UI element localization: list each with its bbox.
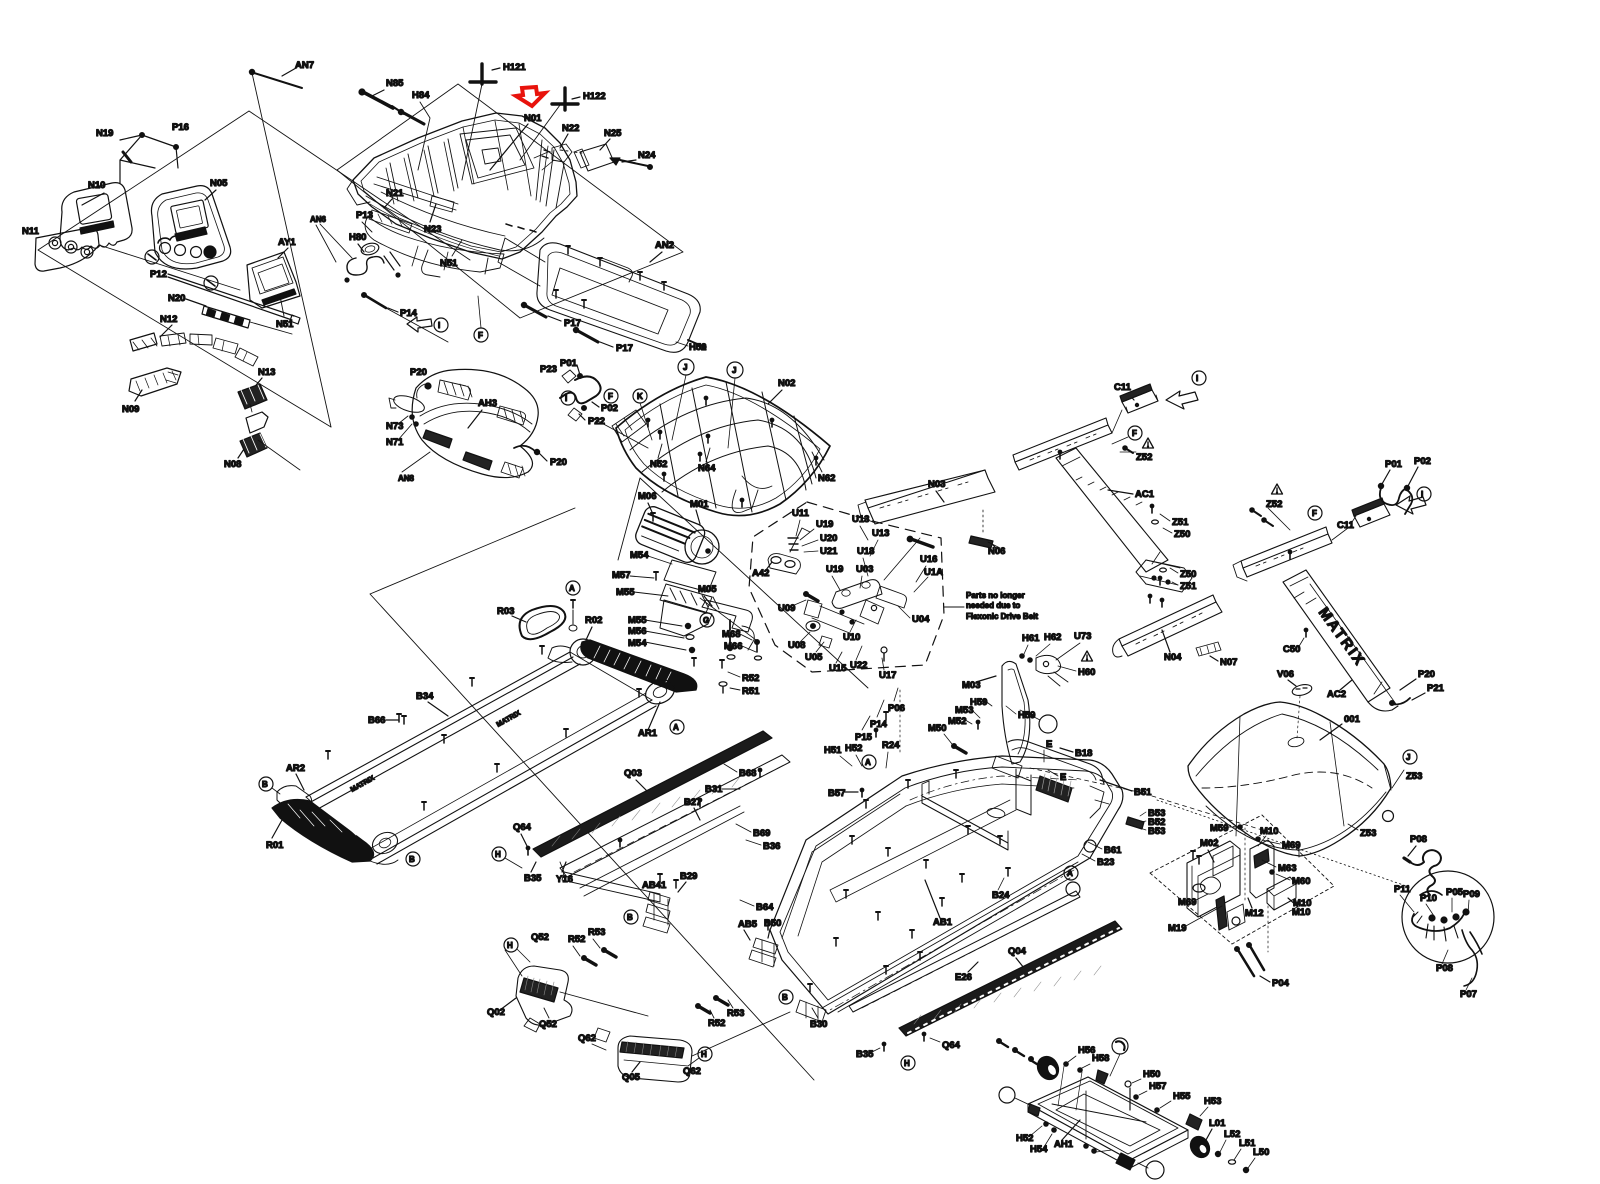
svg-text:N09: N09 xyxy=(122,404,139,415)
svg-text:B51: B51 xyxy=(1134,787,1152,798)
svg-text:B69: B69 xyxy=(753,828,770,839)
svg-text:H122: H122 xyxy=(583,91,606,102)
svg-text:U21: U21 xyxy=(820,546,838,557)
svg-text:Z50: Z50 xyxy=(1174,529,1190,540)
svg-text:L50: L50 xyxy=(1253,1147,1269,1158)
svg-text:P08: P08 xyxy=(1436,963,1453,974)
svg-text:P20: P20 xyxy=(1418,669,1435,680)
svg-text:AB5: AB5 xyxy=(738,919,758,930)
svg-text:R02: R02 xyxy=(585,615,602,626)
svg-text:P07: P07 xyxy=(1460,989,1477,1000)
svg-text:C11: C11 xyxy=(1114,382,1132,393)
svg-text:P15: P15 xyxy=(855,732,873,743)
svg-text:AN6: AN6 xyxy=(310,215,327,224)
svg-text:B18: B18 xyxy=(1075,748,1092,759)
svg-text:N11: N11 xyxy=(22,226,40,237)
svg-text:Z50: Z50 xyxy=(1180,569,1196,580)
svg-text:P11: P11 xyxy=(1394,884,1411,895)
svg-text:R01: R01 xyxy=(266,840,284,851)
svg-text:P02: P02 xyxy=(1414,456,1431,467)
svg-text:J: J xyxy=(683,363,687,372)
svg-text:Parts no longer: Parts no longer xyxy=(966,591,1025,600)
svg-text:N51: N51 xyxy=(276,319,294,330)
svg-text:U13: U13 xyxy=(852,514,869,525)
svg-text:H59: H59 xyxy=(970,697,987,708)
svg-text:H58: H58 xyxy=(1092,1053,1109,1064)
svg-text:J: J xyxy=(732,366,736,375)
svg-text:U04: U04 xyxy=(912,614,930,625)
svg-text:AB1: AB1 xyxy=(933,917,953,928)
svg-text:B35: B35 xyxy=(856,1049,874,1060)
svg-text:M01: M01 xyxy=(690,499,709,510)
svg-text:needed due to: needed due to xyxy=(966,601,1020,610)
svg-text:N04: N04 xyxy=(1164,652,1182,663)
svg-text:R24: R24 xyxy=(882,740,900,751)
svg-text:001: 001 xyxy=(1344,714,1361,725)
svg-text:M02: M02 xyxy=(1200,838,1218,849)
svg-text:B36: B36 xyxy=(763,841,780,852)
svg-text:Q52: Q52 xyxy=(539,1019,557,1030)
svg-text:H121: H121 xyxy=(503,62,526,73)
svg-text:A: A xyxy=(865,758,871,767)
svg-text:U19: U19 xyxy=(816,519,833,530)
svg-text:M50: M50 xyxy=(928,723,946,734)
svg-text:R53: R53 xyxy=(727,1008,744,1019)
svg-text:M12: M12 xyxy=(1245,908,1263,919)
svg-text:Z53: Z53 xyxy=(1406,771,1422,782)
svg-text:AN7: AN7 xyxy=(295,60,314,71)
svg-text:P05: P05 xyxy=(1446,887,1464,898)
svg-text:N22: N22 xyxy=(562,123,579,134)
svg-text:Q04: Q04 xyxy=(1008,946,1027,957)
svg-text:Y16: Y16 xyxy=(556,874,573,885)
svg-text:R03: R03 xyxy=(497,606,514,617)
svg-text:H61: H61 xyxy=(1022,633,1040,644)
svg-text:M19: M19 xyxy=(1168,923,1186,934)
svg-text:P08: P08 xyxy=(1410,834,1427,845)
svg-text:H54: H54 xyxy=(1030,1144,1048,1155)
svg-text:Q52: Q52 xyxy=(531,932,549,943)
svg-text:P13: P13 xyxy=(356,210,373,221)
svg-text:Z53: Z53 xyxy=(1360,828,1376,839)
svg-text:N19: N19 xyxy=(96,128,113,139)
svg-text:AN2: AN2 xyxy=(655,240,674,251)
svg-text:M63: M63 xyxy=(1278,863,1296,874)
svg-text:P17: P17 xyxy=(564,318,581,329)
svg-text:H: H xyxy=(507,941,513,950)
svg-text:A: A xyxy=(673,723,679,732)
svg-text:H51: H51 xyxy=(824,745,842,756)
svg-text:B35: B35 xyxy=(524,873,542,884)
svg-text:M55: M55 xyxy=(616,587,635,598)
svg-text:B24: B24 xyxy=(992,890,1010,901)
svg-text:N51: N51 xyxy=(440,258,458,269)
svg-text:M05: M05 xyxy=(698,584,717,595)
svg-text:M06: M06 xyxy=(638,491,656,502)
svg-text:P01: P01 xyxy=(560,358,578,369)
svg-text:E: E xyxy=(1060,772,1066,783)
svg-text:AC2: AC2 xyxy=(1327,689,1346,700)
svg-text:U1A: U1A xyxy=(924,567,943,578)
svg-text:B66: B66 xyxy=(368,715,385,726)
svg-text:L01: L01 xyxy=(1209,1118,1226,1129)
svg-text:P14: P14 xyxy=(870,719,888,730)
svg-text:B57: B57 xyxy=(828,788,845,799)
svg-text:I: I xyxy=(565,394,567,403)
svg-text:H80: H80 xyxy=(349,232,366,243)
svg-text:M52: M52 xyxy=(948,716,966,727)
svg-text:P20: P20 xyxy=(550,457,567,468)
svg-text:R52: R52 xyxy=(568,934,585,945)
svg-text:B61: B61 xyxy=(1104,845,1122,856)
svg-text:I: I xyxy=(1196,374,1198,383)
svg-text:M54: M54 xyxy=(630,550,649,561)
svg-text:R53: R53 xyxy=(588,927,605,938)
svg-text:M10: M10 xyxy=(1293,898,1311,909)
svg-text:AH3: AH3 xyxy=(478,398,497,409)
svg-text:H84: H84 xyxy=(412,90,430,101)
svg-text:H53: H53 xyxy=(1204,1096,1221,1107)
svg-text:M59: M59 xyxy=(1210,823,1228,834)
svg-text:B64: B64 xyxy=(756,902,774,913)
svg-text:I: I xyxy=(438,321,440,330)
svg-text:P21: P21 xyxy=(1427,683,1445,694)
svg-text:M69: M69 xyxy=(1282,840,1300,851)
svg-text:Z51: Z51 xyxy=(1180,581,1197,592)
svg-text:N62: N62 xyxy=(818,473,835,484)
svg-text:B53: B53 xyxy=(1148,826,1165,837)
svg-text:N20: N20 xyxy=(168,293,185,304)
svg-text:U05: U05 xyxy=(805,652,823,663)
svg-text:N85: N85 xyxy=(386,78,404,89)
svg-text:H52: H52 xyxy=(845,743,862,754)
svg-text:K: K xyxy=(637,392,643,401)
svg-text:P12: P12 xyxy=(150,269,167,280)
svg-text:U19: U19 xyxy=(826,564,843,575)
svg-text:U11: U11 xyxy=(792,508,810,519)
svg-text:Q62: Q62 xyxy=(578,1033,596,1044)
svg-text:N52: N52 xyxy=(650,459,667,470)
svg-text:M68: M68 xyxy=(722,629,740,640)
svg-text:R52: R52 xyxy=(708,1018,725,1029)
svg-text:H50: H50 xyxy=(1143,1069,1160,1080)
svg-text:M54: M54 xyxy=(628,638,647,649)
svg-text:AR2: AR2 xyxy=(286,763,305,774)
svg-text:P01: P01 xyxy=(1385,459,1403,470)
svg-text:Z52: Z52 xyxy=(1136,452,1152,463)
svg-text:N21: N21 xyxy=(386,188,404,199)
svg-text:F: F xyxy=(608,392,613,401)
svg-text:P10: P10 xyxy=(1420,893,1437,904)
svg-text:N02: N02 xyxy=(778,378,795,389)
svg-text:P02: P02 xyxy=(601,403,618,414)
svg-text:N13: N13 xyxy=(258,367,275,378)
svg-text:P16: P16 xyxy=(172,122,189,133)
svg-text:U18: U18 xyxy=(857,546,874,557)
svg-text:N71: N71 xyxy=(386,437,404,448)
svg-text:R52: R52 xyxy=(742,673,759,684)
svg-text:A: A xyxy=(1067,869,1073,878)
svg-text:J: J xyxy=(1406,753,1410,762)
svg-text:P09: P09 xyxy=(1463,889,1480,900)
svg-text:AB41: AB41 xyxy=(642,880,667,891)
svg-text:H57: H57 xyxy=(1149,1081,1166,1092)
svg-text:C50: C50 xyxy=(1283,644,1300,655)
svg-text:N23: N23 xyxy=(424,224,441,235)
svg-text:P17: P17 xyxy=(616,343,633,354)
svg-text:U10: U10 xyxy=(843,632,860,643)
svg-text:H60: H60 xyxy=(1078,667,1095,678)
svg-text:F: F xyxy=(478,331,483,340)
svg-text:B34: B34 xyxy=(416,691,434,702)
svg-text:P20: P20 xyxy=(410,367,427,378)
svg-text:G: G xyxy=(703,616,709,625)
svg-text:U17: U17 xyxy=(879,670,896,681)
svg-text:E: E xyxy=(1046,739,1052,750)
svg-text:R51: R51 xyxy=(742,686,760,697)
svg-text:H: H xyxy=(495,850,501,859)
svg-text:M66: M66 xyxy=(724,641,742,652)
svg-text:U09: U09 xyxy=(778,603,795,614)
svg-text:N12: N12 xyxy=(160,314,177,325)
svg-text:AY1: AY1 xyxy=(278,237,296,248)
svg-text:M56: M56 xyxy=(628,626,646,637)
svg-text:Flexonic Drive Belt: Flexonic Drive Belt xyxy=(966,612,1038,621)
svg-text:Q03: Q03 xyxy=(624,768,642,779)
svg-text:N08: N08 xyxy=(224,459,241,470)
svg-text:Q64: Q64 xyxy=(942,1040,961,1051)
svg-text:U15: U15 xyxy=(829,663,847,674)
svg-text:N25: N25 xyxy=(604,128,622,139)
svg-text:A: A xyxy=(569,584,575,593)
svg-text:H62: H62 xyxy=(1044,632,1061,643)
svg-text:Q62: Q62 xyxy=(683,1066,701,1077)
svg-text:B: B xyxy=(782,993,788,1002)
svg-text:P06: P06 xyxy=(888,703,905,714)
svg-text:U08: U08 xyxy=(788,640,805,651)
svg-text:AC1: AC1 xyxy=(1135,489,1155,500)
svg-text:H55: H55 xyxy=(1173,1091,1191,1102)
svg-text:N05: N05 xyxy=(210,178,228,189)
svg-text:U16: U16 xyxy=(920,554,937,565)
svg-text:Z51: Z51 xyxy=(1172,517,1189,528)
svg-text:H52: H52 xyxy=(689,342,706,353)
svg-text:N64: N64 xyxy=(698,463,716,474)
svg-text:P23: P23 xyxy=(540,364,557,375)
svg-text:B: B xyxy=(627,913,633,922)
svg-text:H: H xyxy=(904,1059,910,1068)
svg-text:M57: M57 xyxy=(612,570,630,581)
svg-text:M60: M60 xyxy=(1292,876,1310,887)
svg-text:U13: U13 xyxy=(872,528,889,539)
svg-text:H59: H59 xyxy=(1018,710,1035,721)
svg-text:U22: U22 xyxy=(850,660,867,671)
svg-text:F: F xyxy=(1132,429,1137,438)
svg-text:N24: N24 xyxy=(638,150,656,161)
svg-text:N07: N07 xyxy=(1220,657,1237,668)
svg-text:M10: M10 xyxy=(1260,826,1278,837)
svg-text:P04: P04 xyxy=(1272,978,1290,989)
svg-text:H52: H52 xyxy=(1016,1133,1033,1144)
svg-text:AH1: AH1 xyxy=(1054,1139,1074,1150)
svg-text:AN8: AN8 xyxy=(398,474,415,483)
svg-text:P22: P22 xyxy=(588,416,605,427)
svg-text:B: B xyxy=(262,780,268,789)
svg-text:B29: B29 xyxy=(680,871,697,882)
svg-text:B: B xyxy=(409,855,415,864)
svg-text:Q64: Q64 xyxy=(513,822,532,833)
svg-text:B23: B23 xyxy=(1097,857,1114,868)
svg-text:N73: N73 xyxy=(386,421,403,432)
svg-text:M55: M55 xyxy=(628,615,647,626)
svg-text:U20: U20 xyxy=(820,533,837,544)
svg-text:F: F xyxy=(1312,509,1317,518)
svg-text:V06: V06 xyxy=(1277,669,1294,680)
svg-text:M69: M69 xyxy=(1178,897,1196,908)
svg-text:U73: U73 xyxy=(1074,631,1091,642)
svg-text:E26: E26 xyxy=(955,972,972,983)
svg-text:L52: L52 xyxy=(1224,1129,1240,1140)
